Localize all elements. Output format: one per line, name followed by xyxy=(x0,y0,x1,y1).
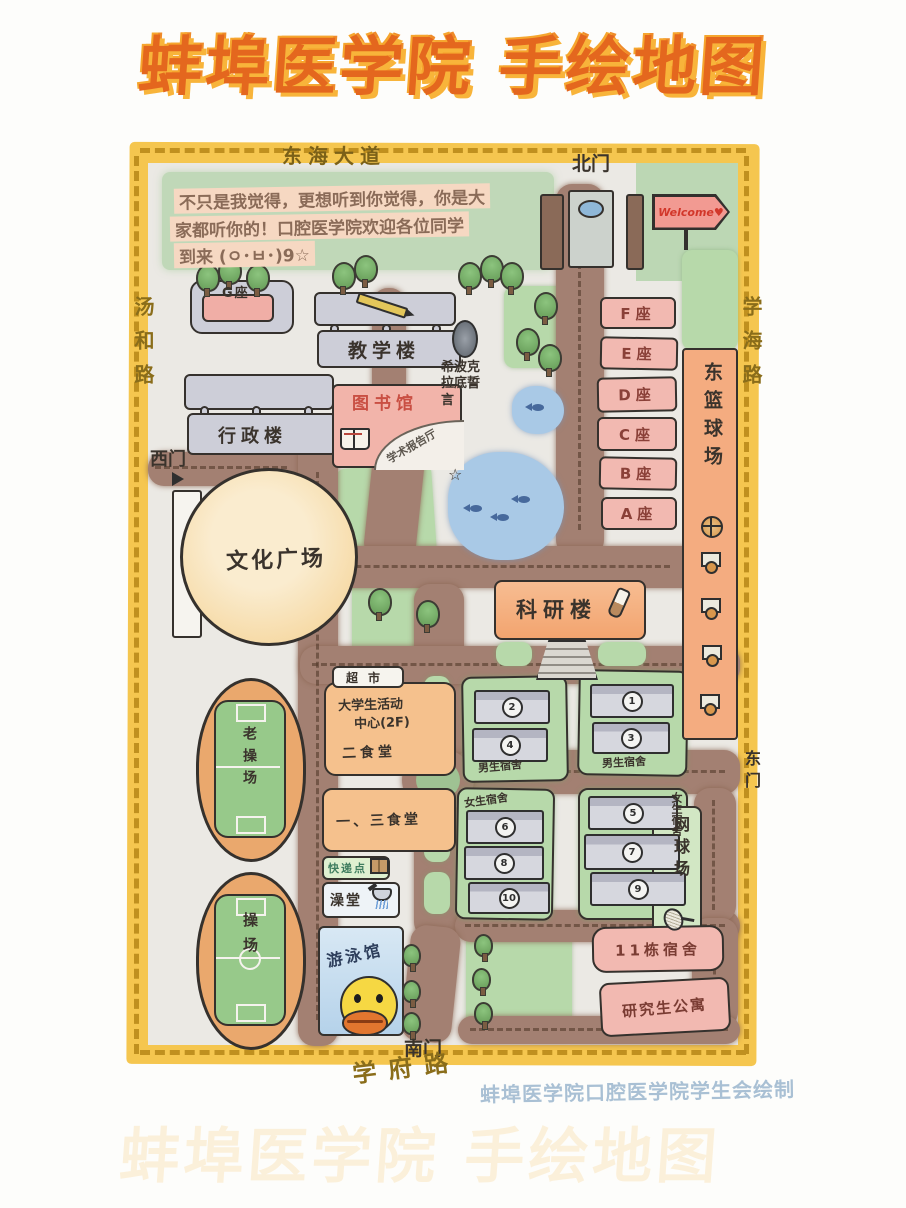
block-f-label: F座 xyxy=(620,303,655,324)
frame-dash-right xyxy=(744,156,749,1054)
tree-icon xyxy=(472,968,491,991)
dorm-number: 4 xyxy=(500,735,521,756)
note-line-2: 家都听你的！口腔医学院欢迎各位同学 xyxy=(170,211,469,241)
hand-drawn-campus-map: 蚌埠医学院 手绘地图 文化广场 xyxy=(0,0,906,1208)
east-basketball-court-label: 东篮球场 xyxy=(699,362,726,532)
road-name-north: 东海大道 xyxy=(282,140,386,169)
page-title: 蚌埠医学院 手绘地图 xyxy=(0,16,906,108)
dorm-11-label: 11栋宿舍 xyxy=(615,938,701,960)
tree-icon xyxy=(402,980,421,1003)
note-line-3: 到来 (ㅇ･ㅂ･)9☆ xyxy=(174,241,315,268)
block-a-label: A座 xyxy=(621,503,658,524)
dorm-number: 3 xyxy=(621,728,642,749)
canteen-1-3-label: 一、三食堂 xyxy=(336,809,422,832)
basketball-hoop-icon xyxy=(700,645,722,669)
book-icon xyxy=(340,428,370,450)
west-gate-arrow-icon xyxy=(172,472,184,486)
goal-box xyxy=(236,704,266,722)
package-icon xyxy=(370,858,389,874)
tree-icon xyxy=(332,262,356,290)
basketball-hoop-icon xyxy=(699,552,721,576)
block-b-label: B座 xyxy=(620,463,657,485)
hippocratic-oath-label: 希波克拉底誓言 xyxy=(441,360,485,409)
dorm-number: 5 xyxy=(623,803,644,824)
research-building-label: 科研楼 xyxy=(516,594,597,624)
road-dash xyxy=(712,800,715,910)
basketball-hoop-icon xyxy=(698,694,720,718)
tree-icon xyxy=(474,1002,493,1025)
admin-building-top xyxy=(184,374,334,410)
tree-icon xyxy=(516,328,540,356)
tree-icon xyxy=(474,934,493,957)
basketball-hoop-icon xyxy=(699,598,721,622)
welcome-sign-label: Welcome♥ xyxy=(655,197,728,228)
dorm-number: 10 xyxy=(499,888,520,909)
road-name-west: 汤和路 xyxy=(129,296,158,456)
statue-icon xyxy=(452,320,478,358)
north-gate-pillar xyxy=(626,194,644,270)
dorm-number: 6 xyxy=(495,817,516,838)
tree-icon xyxy=(416,600,440,628)
goal-box xyxy=(236,816,266,834)
fish-icon xyxy=(518,496,530,503)
tree-icon xyxy=(196,264,220,292)
duck-bill-icon xyxy=(342,1010,388,1036)
library-label: 图书馆 xyxy=(352,389,418,414)
tree-icon xyxy=(500,262,524,290)
activity-center-label-2: 中心(2F) xyxy=(354,711,410,732)
frame-dash-top xyxy=(140,148,746,153)
g-block-label: G座 xyxy=(222,282,250,301)
block-d-label: D座 xyxy=(618,384,656,406)
admin-building-label: 行政楼 xyxy=(218,422,287,448)
tree-icon xyxy=(354,255,378,283)
star-icon: ☆ xyxy=(448,465,462,484)
tree-icon xyxy=(458,262,482,290)
dorm-number: 9 xyxy=(628,879,649,900)
signpost-pole xyxy=(684,230,688,250)
lawn-patch xyxy=(496,642,532,666)
tree-icon xyxy=(534,292,558,320)
old-playground-label: 老操场 xyxy=(239,726,259,812)
watermark-title: 蚌埠医学院 手绘地图 xyxy=(117,1108,724,1195)
fish-icon xyxy=(470,505,482,512)
road-median xyxy=(424,872,450,914)
fish-icon xyxy=(532,404,544,411)
supermarket-label: 超市 xyxy=(346,669,390,686)
kiosk-window xyxy=(578,200,604,218)
tennis-court-label: 网球场 xyxy=(668,816,692,904)
lawn-patch xyxy=(682,250,738,350)
dorm-number: 8 xyxy=(494,853,515,874)
tree-icon xyxy=(368,588,392,616)
playground-label: 操场 xyxy=(240,912,261,972)
tree-icon xyxy=(402,944,421,967)
tree-icon xyxy=(402,1012,421,1035)
lawn-patch xyxy=(598,642,646,666)
block-e-label: E座 xyxy=(621,343,657,365)
road-name-east: 学海路 xyxy=(737,296,766,456)
goal-box xyxy=(236,1004,266,1022)
dorm-number: 7 xyxy=(622,842,643,863)
welcome-signpost: Welcome♥ xyxy=(652,194,730,230)
boys-dorm-label: 男生宿舍 xyxy=(602,753,647,771)
canteen-2-label: 二食堂 xyxy=(342,741,397,763)
north-gate-pillar xyxy=(540,194,564,270)
block-c-label: C座 xyxy=(619,424,655,445)
east-gate-label: 东门 xyxy=(739,750,763,812)
teaching-building-label: 教学楼 xyxy=(348,336,420,363)
frame-dash-left xyxy=(134,156,139,1054)
attribution: 蚌埠医学院口腔医学院学生会绘制 xyxy=(480,1073,795,1107)
express-point-label: 快递点 xyxy=(328,860,367,876)
dorm-number: 2 xyxy=(502,697,523,718)
tree-icon xyxy=(538,344,562,372)
bathhouse-label: 澡堂 xyxy=(330,890,362,910)
west-gate-label: 西门 xyxy=(150,445,186,471)
culture-square-label: 文化广场 xyxy=(225,540,326,575)
fish-icon xyxy=(497,514,509,521)
road-dash xyxy=(310,565,670,568)
dorm-number: 1 xyxy=(622,691,643,712)
north-gate-label: 北门 xyxy=(572,149,610,176)
graduate-apartment-label: 研究生公寓 xyxy=(622,993,709,1021)
